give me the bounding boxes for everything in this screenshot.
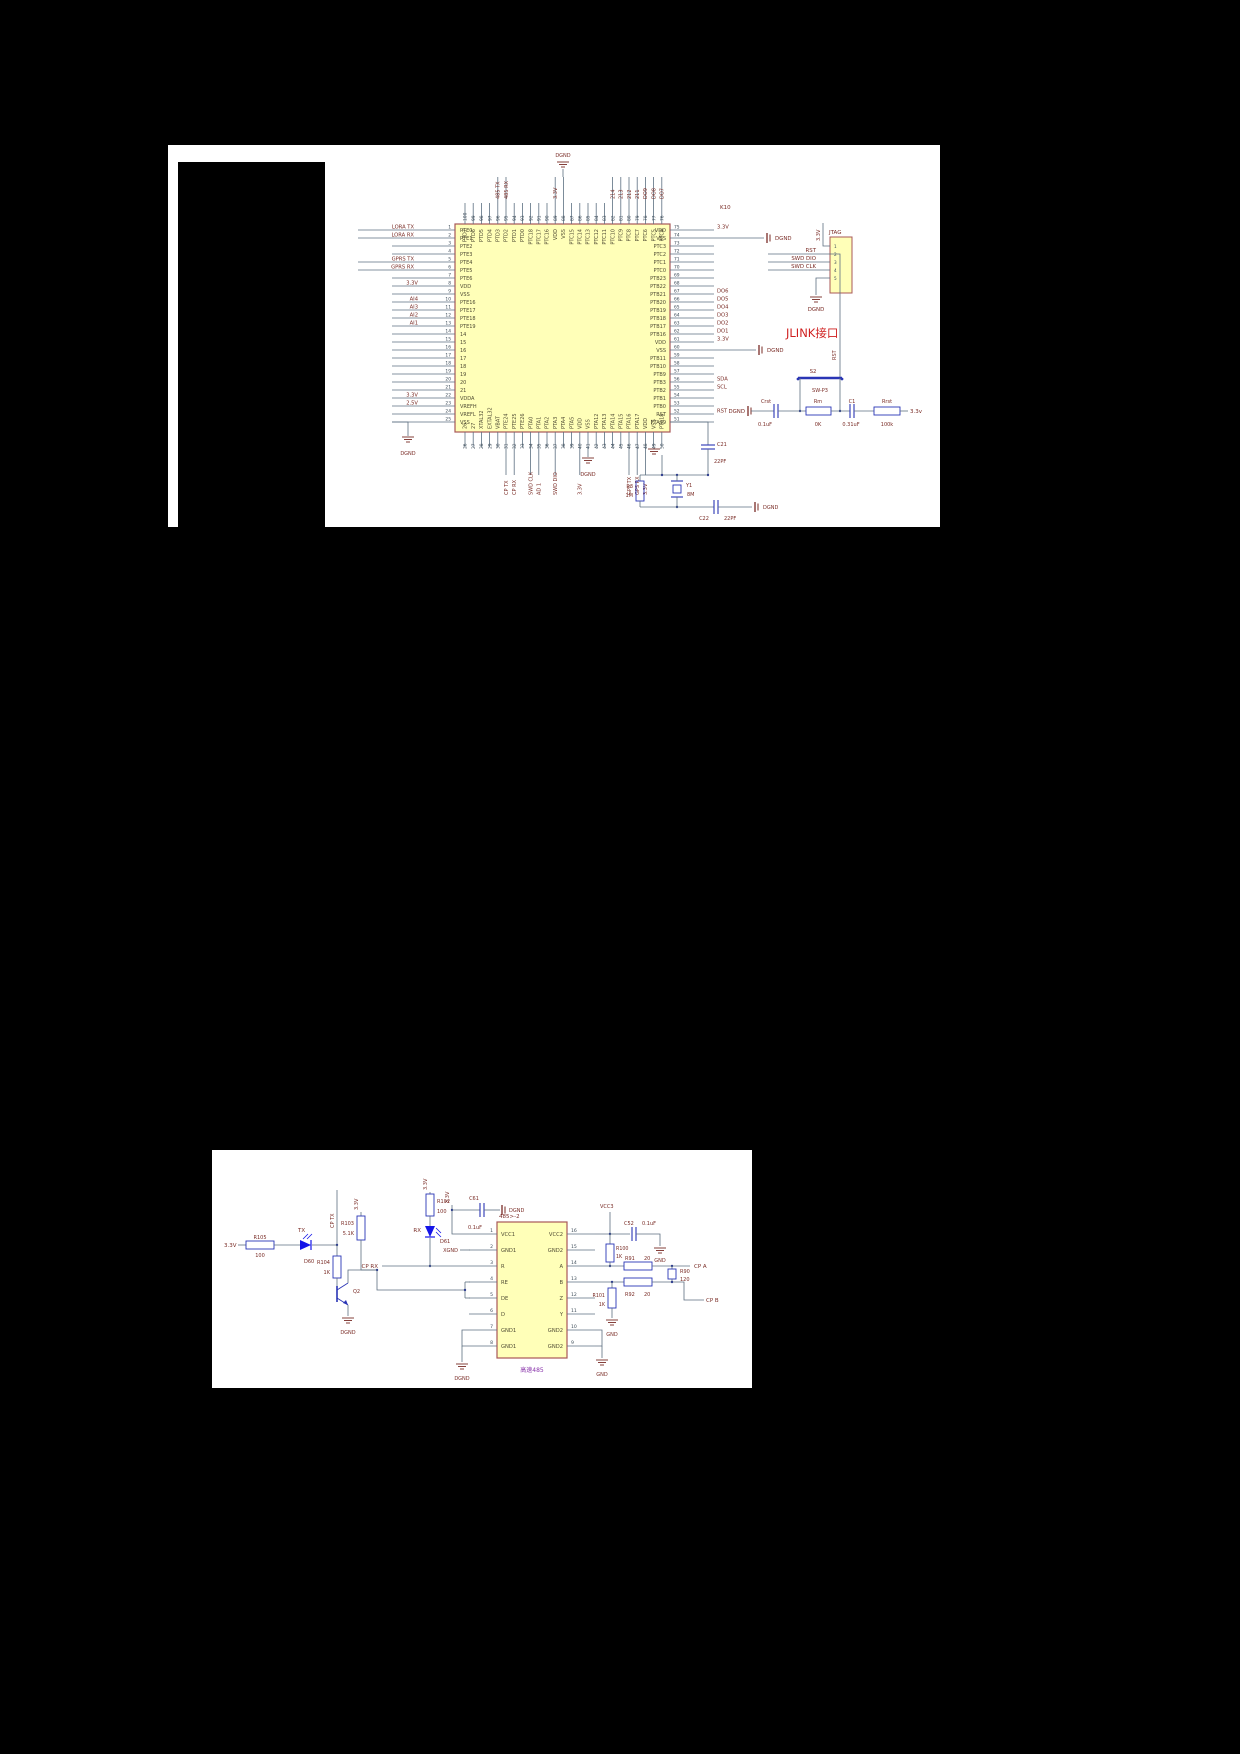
wire bbox=[392, 422, 408, 436]
pin-name: PTC15 bbox=[569, 229, 575, 245]
pin-number: 65 bbox=[674, 305, 680, 311]
net-label: SW-P3 bbox=[812, 388, 828, 394]
net-label: RST bbox=[717, 409, 728, 415]
pin-number: 60 bbox=[674, 345, 680, 351]
net-label: 100k bbox=[881, 422, 894, 428]
net-label: 3.3V bbox=[406, 393, 418, 399]
pin-number: 91 bbox=[537, 215, 543, 221]
pin-name: PTB11 bbox=[650, 356, 666, 362]
net-label: DGND bbox=[808, 307, 825, 313]
pin-name: VDD bbox=[460, 284, 471, 290]
net-label: R101 bbox=[593, 1293, 606, 1299]
net-label: LORA TX bbox=[392, 225, 415, 231]
net-label: DGND bbox=[400, 451, 415, 457]
net-label: Rm bbox=[814, 399, 822, 405]
pin-number: 71 bbox=[674, 257, 680, 263]
net-label: DO9 bbox=[643, 188, 649, 199]
net-label: 485 TX bbox=[496, 181, 502, 199]
net-label: JLINK接口 bbox=[785, 326, 838, 340]
pin-number: 79 bbox=[635, 215, 641, 221]
pin-name: PTB22 bbox=[650, 284, 666, 290]
net-label: 22PF bbox=[724, 516, 736, 522]
net-label: AI1 bbox=[410, 321, 418, 327]
pin-name: XTAL32 bbox=[479, 410, 485, 429]
pin-name: PTE17 bbox=[460, 308, 476, 314]
pin-number: 66 bbox=[674, 297, 680, 303]
pin-number: 75 bbox=[674, 225, 680, 231]
wire bbox=[595, 1330, 602, 1346]
pin-name: PTC6 bbox=[643, 229, 649, 241]
pin-number: 4 bbox=[490, 1276, 493, 1282]
net-label: Rrst bbox=[882, 399, 892, 405]
pin-name: PTE3 bbox=[460, 252, 472, 258]
net-label: 0.1uF bbox=[642, 1221, 656, 1227]
pin-number: 81 bbox=[619, 215, 625, 221]
pin-name: A bbox=[559, 1264, 563, 1270]
net-label: 2 bbox=[834, 252, 837, 257]
net-label: DGND bbox=[767, 348, 784, 354]
pin-name: PTC18 bbox=[528, 229, 534, 245]
pin-name: PTE2 bbox=[460, 244, 472, 250]
pin-name: Z bbox=[559, 1296, 563, 1302]
pin-number: 29 bbox=[487, 443, 493, 449]
pin-name: GND1 bbox=[501, 1248, 516, 1254]
pin-number: 24 bbox=[445, 409, 451, 415]
pin-name: PTC11 bbox=[602, 229, 608, 245]
pin-name: GND2 bbox=[548, 1248, 563, 1254]
pin-number: 31 bbox=[504, 443, 510, 449]
pin-name: PTD3 bbox=[496, 229, 502, 242]
pin-number: 70 bbox=[674, 265, 680, 271]
pin-number: 87 bbox=[569, 215, 575, 221]
rs485-schematic-panel: 485>-2高速4851VCC12GND13R4RE5DE6D7GND18GND… bbox=[212, 1150, 752, 1388]
pin-name: PTA13 bbox=[602, 414, 608, 429]
pin-number: 86 bbox=[578, 215, 584, 221]
pin-number: 30 bbox=[496, 443, 502, 449]
net-label: 3.3V bbox=[816, 229, 822, 241]
pin-name: D bbox=[501, 1312, 505, 1318]
net-label: 3.3V bbox=[717, 225, 729, 231]
pin-number: 7 bbox=[448, 273, 451, 279]
resistor bbox=[874, 407, 900, 415]
pin-number: 6 bbox=[448, 265, 451, 271]
pin-number: 27 bbox=[471, 443, 477, 449]
net-label: CP TX bbox=[330, 1213, 336, 1228]
pin-name: PTD0 bbox=[520, 229, 526, 242]
wire bbox=[652, 1282, 704, 1300]
net-label: DGND bbox=[454, 1376, 469, 1382]
net-label: AD 1 bbox=[537, 483, 543, 495]
net-label: 0K bbox=[815, 422, 822, 428]
net-label: 5 bbox=[834, 276, 837, 281]
net-label: R104 bbox=[317, 1260, 330, 1266]
net-label: DO5 bbox=[717, 297, 728, 303]
net-label: 22PF bbox=[714, 459, 726, 465]
pin-name: PTE24 bbox=[504, 413, 510, 429]
wire bbox=[816, 278, 830, 295]
pin-name: PTA4 bbox=[561, 417, 567, 429]
pin-name: PTE26 bbox=[520, 413, 526, 429]
pin-number: 61 bbox=[674, 337, 680, 343]
pin-number: 98 bbox=[479, 215, 485, 221]
net-label: DO8 bbox=[651, 188, 657, 199]
net-label: 0.31uF bbox=[842, 422, 859, 428]
pin-name: 17 bbox=[460, 356, 466, 362]
mcu-chip bbox=[455, 224, 670, 432]
resistor bbox=[426, 1194, 434, 1216]
pin-name: PTA1 bbox=[537, 417, 543, 429]
pin-number: 42 bbox=[594, 443, 600, 449]
pin-name: GND2 bbox=[548, 1328, 563, 1334]
pin-name: PTD6 bbox=[471, 229, 477, 242]
net-label: 20 bbox=[644, 1256, 650, 1262]
pin-number: 58 bbox=[674, 361, 680, 367]
net-label: AI3 bbox=[410, 305, 418, 311]
net-label: 3.3V bbox=[406, 281, 418, 287]
net-label: 100 bbox=[437, 1209, 447, 1215]
pin-name: PTA3 bbox=[553, 417, 559, 429]
net-label: Crst bbox=[761, 399, 771, 405]
pin-name: PTC9 bbox=[619, 229, 625, 241]
pin-number: 57 bbox=[674, 369, 680, 375]
pin-name: PTC0 bbox=[654, 268, 666, 274]
net-label: 3.3V bbox=[354, 1198, 360, 1210]
pin-number: 13 bbox=[571, 1276, 577, 1282]
pin-name: VCC1 bbox=[501, 1232, 515, 1238]
net-label: DGND bbox=[580, 472, 595, 478]
net-label: AI4 bbox=[410, 297, 419, 303]
pin-name: PTD1 bbox=[512, 229, 518, 242]
led-icon bbox=[425, 1226, 435, 1237]
pin-name: 18 bbox=[460, 364, 466, 370]
pin-name: PTE4 bbox=[460, 260, 472, 266]
net-label: CP RX bbox=[512, 479, 518, 495]
pin-number: 97 bbox=[487, 215, 493, 221]
resistor bbox=[624, 1278, 652, 1286]
pin-number: 14 bbox=[571, 1260, 577, 1266]
pin-number: 7 bbox=[490, 1324, 493, 1330]
crystal-icon bbox=[673, 485, 681, 493]
pin-name: PTB9 bbox=[653, 372, 666, 378]
pin-number: 21 bbox=[445, 385, 451, 391]
net-label: Q2 bbox=[353, 1289, 360, 1295]
resistor bbox=[606, 1244, 614, 1262]
net-label: 212 bbox=[627, 189, 633, 199]
net-label: DGND bbox=[763, 505, 778, 511]
pin-name: PTC5 bbox=[651, 229, 657, 241]
pin-number: 33 bbox=[520, 443, 526, 449]
net-label: CP B bbox=[706, 1298, 719, 1304]
pin-number: 92 bbox=[528, 215, 534, 221]
net-label: DO6 bbox=[717, 289, 728, 295]
net-label: R100 bbox=[616, 1246, 629, 1252]
net-label: DO4 bbox=[717, 305, 729, 311]
pin-name: PTB2 bbox=[653, 388, 666, 394]
pin-number: 63 bbox=[674, 321, 680, 327]
net-label: SWD DIO bbox=[791, 256, 816, 262]
pin-number: 44 bbox=[610, 443, 616, 449]
wire bbox=[348, 1270, 465, 1290]
pin-name: 15 bbox=[460, 340, 466, 346]
net-label: DO1 bbox=[717, 329, 728, 335]
document-page: { "page": {"bg": "#000000"}, "colors": {… bbox=[0, 0, 1240, 1754]
pin-name: PTD4 bbox=[487, 229, 493, 242]
net-label: 0.1uF bbox=[758, 422, 772, 428]
net-label: R103 bbox=[341, 1221, 354, 1227]
net-label: AI2 bbox=[410, 313, 418, 319]
pin-number: 62 bbox=[674, 329, 680, 335]
pin-number: 1 bbox=[448, 225, 451, 231]
pin-name: PTB1 bbox=[653, 396, 666, 402]
pin-name: PTC16 bbox=[545, 229, 551, 245]
pin-number: 69 bbox=[674, 273, 680, 279]
pin-name: GND1 bbox=[501, 1328, 516, 1334]
pin-name: 21 bbox=[460, 388, 466, 394]
wire bbox=[670, 422, 708, 445]
transistor-icon bbox=[343, 1300, 348, 1305]
pin-name: PTC17 bbox=[537, 229, 543, 245]
pin-number: 56 bbox=[674, 377, 680, 383]
pin-number: 25 bbox=[445, 417, 451, 423]
pin-number: 72 bbox=[674, 249, 680, 255]
net-label: DGND bbox=[555, 153, 570, 159]
net-label: Y1 bbox=[685, 483, 692, 489]
pin-number: 4 bbox=[448, 249, 451, 255]
pin-number: 52 bbox=[674, 409, 680, 415]
pin-name: PTA5 bbox=[569, 417, 575, 429]
wire bbox=[636, 1234, 660, 1246]
pin-number: 5 bbox=[448, 257, 451, 263]
pin-number: 74 bbox=[674, 233, 680, 239]
pin-name: PTD5 bbox=[479, 229, 485, 242]
pin-number: 59 bbox=[674, 353, 680, 359]
pin-number: 39 bbox=[569, 443, 575, 449]
pin-number: 85 bbox=[586, 215, 592, 221]
resistor bbox=[624, 1262, 652, 1270]
net-label: S2 bbox=[810, 369, 817, 375]
pin-name: VSS bbox=[460, 292, 470, 298]
pin-number: 89 bbox=[553, 215, 559, 221]
net-label: 213 bbox=[619, 189, 625, 199]
pin-number: 50 bbox=[660, 443, 666, 449]
pin-number: 20 bbox=[445, 377, 451, 383]
pin-number: 100 bbox=[463, 212, 469, 221]
net-label: DGND bbox=[728, 409, 745, 415]
net-label: 4 bbox=[834, 268, 837, 273]
pin-number: 3 bbox=[490, 1260, 493, 1266]
junction-dot bbox=[707, 474, 709, 476]
net-label: DO3 bbox=[717, 313, 728, 319]
pin-number: 18 bbox=[445, 361, 451, 367]
pin-number: 2 bbox=[448, 233, 451, 239]
pin-number: 73 bbox=[674, 241, 680, 247]
pin-number: 13 bbox=[445, 321, 451, 327]
pin-name: PTB19 bbox=[650, 308, 666, 314]
pin-name: EXTAL32 bbox=[487, 407, 493, 429]
net-label: CP A bbox=[694, 1264, 707, 1270]
rs485-schematic-svg: 485>-2高速4851VCC12GND13R4RE5DE6D7GND18GND… bbox=[212, 1150, 752, 1388]
pin-name: VDD bbox=[553, 229, 559, 240]
pin-name: 27 bbox=[471, 423, 477, 429]
pin-name: 20 bbox=[460, 380, 466, 386]
net-label: GPRS TX bbox=[392, 257, 415, 263]
pin-number: 37 bbox=[553, 443, 559, 449]
pin-name: VBAT bbox=[496, 415, 502, 429]
pin-name: PTC4 bbox=[660, 229, 666, 241]
net-label: GND bbox=[606, 1332, 618, 1338]
pin-number: 23 bbox=[445, 401, 451, 407]
pin-name: VDD bbox=[655, 340, 666, 346]
switch-icon bbox=[841, 378, 844, 381]
wire bbox=[452, 1205, 469, 1234]
net-label: SCL bbox=[717, 385, 727, 391]
net-label: LORA RX bbox=[391, 233, 414, 239]
pin-number: 16 bbox=[571, 1228, 577, 1234]
pin-number: 90 bbox=[545, 215, 551, 221]
net-label: 20 bbox=[644, 1292, 650, 1298]
net-label: XGND bbox=[443, 1248, 458, 1254]
pin-number: 47 bbox=[635, 443, 641, 449]
pin-number: 41 bbox=[586, 443, 592, 449]
pin-number: 84 bbox=[594, 215, 600, 221]
net-label: 0.1uF bbox=[468, 1225, 482, 1231]
pin-name: PTE19 bbox=[460, 324, 476, 330]
pin-number: 48 bbox=[643, 443, 649, 449]
pin-number: 9 bbox=[448, 289, 451, 295]
pin-name: PTB16 bbox=[650, 332, 666, 338]
pin-number: 14 bbox=[445, 329, 451, 335]
pin-name: VSS bbox=[561, 229, 567, 239]
pin-name: 19 bbox=[460, 372, 466, 378]
pin-name: PTC13 bbox=[586, 229, 592, 245]
net-label: 3.3V bbox=[445, 1191, 451, 1203]
net-label: D60 bbox=[304, 1259, 314, 1265]
wire bbox=[337, 1283, 348, 1290]
pin-name: PTC8 bbox=[627, 229, 633, 241]
pin-name: PTB23 bbox=[650, 276, 666, 282]
net-label: DO7 bbox=[660, 188, 666, 199]
pin-name: PTB18 bbox=[650, 316, 666, 322]
net-label: C52 bbox=[624, 1221, 634, 1227]
pin-name: PTB3 bbox=[653, 380, 666, 386]
rs485-chip bbox=[497, 1222, 567, 1358]
net-label: DGND bbox=[340, 1330, 355, 1336]
pin-number: 46 bbox=[627, 443, 633, 449]
net-label: C21 bbox=[717, 442, 727, 448]
net-label: 3.3V bbox=[553, 187, 559, 199]
net-label: GPRS RX bbox=[391, 265, 414, 271]
pin-number: 3 bbox=[448, 241, 451, 247]
pin-name: 16 bbox=[460, 348, 466, 354]
net-label: DGND bbox=[509, 1208, 524, 1214]
net-label: RST bbox=[832, 349, 838, 360]
pin-number: 49 bbox=[651, 443, 657, 449]
resistor bbox=[246, 1241, 274, 1249]
pin-name: PTA14 bbox=[610, 414, 616, 429]
pin-name: 26 bbox=[463, 423, 469, 429]
net-label: 5.1K bbox=[343, 1231, 355, 1237]
net-label: 100 bbox=[255, 1253, 265, 1259]
net-label: 1K bbox=[616, 1254, 623, 1260]
net-label: SDA bbox=[717, 377, 728, 383]
pin-number: 10 bbox=[445, 297, 451, 303]
pin-number: 93 bbox=[520, 215, 526, 221]
junction-dot bbox=[661, 474, 663, 476]
net-label: 214 bbox=[610, 189, 616, 199]
switch-icon bbox=[797, 378, 800, 381]
pin-name: PTA16 bbox=[627, 414, 633, 429]
net-label: 211 bbox=[635, 189, 641, 199]
pin-number: 53 bbox=[674, 401, 680, 407]
pin-number: 32 bbox=[512, 443, 518, 449]
net-label: 3.3v bbox=[910, 409, 923, 415]
pin-name: PTB0 bbox=[653, 404, 666, 410]
net-label: 2.5V bbox=[406, 401, 418, 407]
net-label: 1 bbox=[834, 244, 837, 249]
pin-number: 9 bbox=[571, 1340, 574, 1346]
pin-name: PTD7 bbox=[463, 229, 469, 242]
pin-name: VSS bbox=[656, 348, 666, 354]
pin-name: VSS bbox=[586, 419, 592, 429]
net-label: C1 bbox=[849, 399, 856, 405]
net-label: GND bbox=[596, 1372, 608, 1378]
net-label: TX bbox=[297, 1228, 305, 1234]
pin-number: 88 bbox=[561, 215, 567, 221]
resistor bbox=[333, 1256, 341, 1278]
pin-number: 12 bbox=[445, 313, 451, 319]
pin-number: 83 bbox=[602, 215, 608, 221]
net-label: RX bbox=[413, 1228, 421, 1234]
pin-name: R bbox=[501, 1264, 505, 1270]
pin-number: 95 bbox=[504, 215, 510, 221]
junction-dot bbox=[671, 1281, 673, 1283]
pin-number: 5 bbox=[490, 1292, 493, 1298]
pin-number: 36 bbox=[545, 443, 551, 449]
pin-name: PTE5 bbox=[460, 268, 472, 274]
pin-name: VDDA bbox=[460, 396, 475, 402]
junction-dot bbox=[464, 1289, 466, 1291]
pin-name: PTA12 bbox=[594, 414, 600, 429]
net-label: CP TX bbox=[504, 480, 510, 495]
net-label: R105 bbox=[253, 1235, 266, 1241]
net-label: 1K bbox=[599, 1302, 606, 1308]
mcu-schematic-panel: 1PTE0LORA TX2PTE1LORA RX3PTE24PTE35PTE4G… bbox=[168, 145, 940, 527]
pin-number: 35 bbox=[537, 443, 543, 449]
pin-name: VSS bbox=[651, 419, 657, 429]
wire bbox=[595, 1212, 610, 1234]
pin-number: 22 bbox=[445, 393, 451, 399]
pin-name: PTC14 bbox=[578, 229, 584, 245]
pin-number: 94 bbox=[512, 215, 518, 221]
pin-number: 8 bbox=[448, 281, 451, 287]
net-label: SWD DIO bbox=[553, 472, 559, 495]
pin-name: GND1 bbox=[501, 1344, 516, 1350]
pin-number: 28 bbox=[479, 443, 485, 449]
pin-name: GND2 bbox=[548, 1344, 563, 1350]
pin-number: 55 bbox=[674, 385, 680, 391]
pin-name: PTC12 bbox=[594, 229, 600, 245]
net-label: RST bbox=[806, 248, 817, 254]
pin-name: VREFH bbox=[460, 404, 477, 410]
led-icon bbox=[300, 1240, 311, 1250]
pin-number: 38 bbox=[561, 443, 567, 449]
pin-number: 34 bbox=[528, 443, 534, 449]
pin-name: PTE6 bbox=[460, 276, 472, 282]
pin-name: PTA2 bbox=[545, 417, 551, 429]
net-label: 1M bbox=[626, 493, 634, 499]
pin-number: 45 bbox=[619, 443, 625, 449]
pin-number: 54 bbox=[674, 393, 680, 399]
